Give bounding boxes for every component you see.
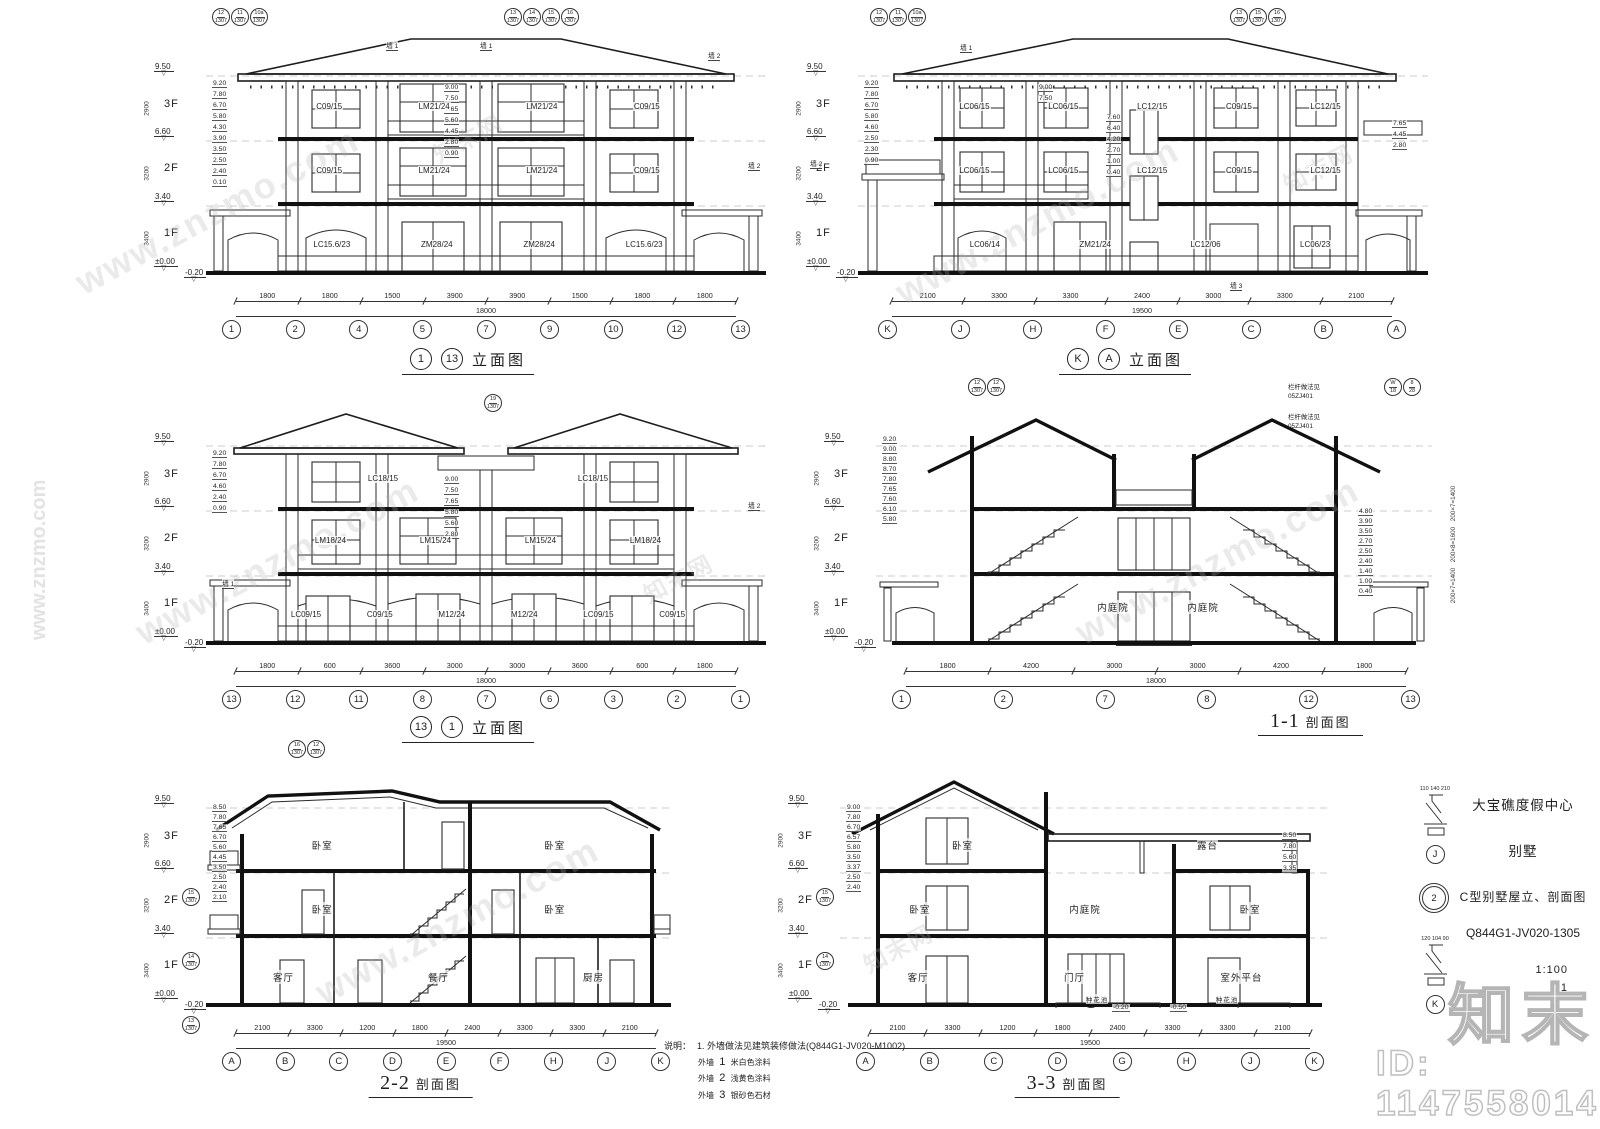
detail-bubble: 111307	[889, 8, 907, 26]
axis-row: ABCDGHJK	[856, 1052, 1324, 1071]
title-axis-start: 1	[410, 348, 432, 370]
axis-bubble: 8	[1197, 690, 1216, 709]
axis-bubble: 7	[477, 690, 496, 709]
wall-finish-tag: 墙 2	[810, 158, 822, 169]
inner-levels: 9.207.806.705.804.303.903.502.502.400.10	[212, 80, 227, 187]
base-levels: -0.20-0.50	[1112, 1004, 1187, 1012]
panel-title: 2-2剖面图	[368, 1072, 473, 1098]
panel-section-3-3: 151307141307 201307 9.50 3F 6.60 2F 3.40…	[782, 742, 1352, 1087]
inner-levels: 8.507.807.656.705.604.453.502.502.402.10	[212, 804, 227, 902]
level-column: 9.50 3F 6.60 2F 3.40 1F ±0.00 -0.20 2900…	[148, 742, 204, 1042]
title-text: 立面图	[472, 717, 526, 738]
room-labels-2f: 卧室卧室	[206, 902, 671, 916]
window-labels-1f: LC15.6/23ZM28/24ZM28/24LC15.6/23	[278, 240, 698, 249]
axis-row: 131211876321	[222, 690, 750, 709]
axis-bubble: 1	[731, 690, 750, 709]
axis-bubble: 4	[349, 320, 368, 339]
dimension-row: 21003300120018002400330033002100	[870, 1023, 1310, 1034]
detail-bubble: 151307	[542, 8, 560, 26]
wall-finish-tag: 墙 1	[960, 42, 972, 53]
room-labels-2f: 卧室内庭院卧室	[840, 902, 1330, 916]
sheet-number-bubble: 2	[1422, 886, 1446, 910]
detail-bubble: W18	[1384, 378, 1402, 396]
detail-bubble: 131307	[504, 8, 522, 26]
title-axis-end: A	[1098, 348, 1120, 370]
level-column: 9.50 3F 6.60 2F 3.40 1F ±0.00 -0.20 2900…	[148, 10, 204, 310]
detail-callouts-right: 131307141307151307161307	[504, 8, 579, 26]
axis-bubble: F	[490, 1052, 509, 1071]
axis-bubble: K	[878, 320, 897, 339]
dimension-row: 180060036003000300036006001800	[236, 661, 736, 672]
inner-levels: 9.209.008.808.707.807.657.606.105.80	[882, 436, 897, 524]
detail-callout: 121307121307	[968, 378, 1005, 396]
room-labels-1f: 客厅餐厅厨房	[206, 970, 671, 984]
dimension-row: 21003300120018002400330033002100	[236, 1023, 656, 1034]
panel-section-1-1: 121307121307 W18828 栏杆做法见05ZJ401 栏杆做法见05…	[818, 380, 1454, 740]
dimension-row: 180042003000300042001800	[906, 661, 1406, 672]
building-elevation-drawing	[206, 396, 766, 646]
axis-bubble: J	[597, 1052, 616, 1071]
axis-bubble: 13	[731, 320, 750, 339]
axis-bubble: 12	[667, 320, 686, 339]
title-axis-end: 13	[441, 348, 463, 370]
panel-title: 1-1剖面图	[1258, 710, 1363, 736]
project-name: 大宝礁度假中心	[1448, 794, 1598, 814]
window-labels-1f: LC09/15C09/15M12/24M12/24LC09/15C09/15	[268, 610, 708, 619]
dimension-row: 2100330033002400300033002100	[892, 291, 1392, 302]
axis-bubble: F	[1096, 320, 1115, 339]
axis-bubble: 10	[604, 320, 623, 339]
detail-bubble: 161307	[1268, 8, 1286, 26]
window-labels-3f: C09/15LM21/24LM21/24C09/15	[278, 102, 698, 111]
axis-bubble: H	[1023, 320, 1042, 339]
detail-bubble: 121307	[212, 8, 230, 26]
notes-block: 说明：1. 外墙做法见建筑装修做法(Q844G1-JV020-M1002). 外…	[664, 1040, 908, 1103]
axis-bubble: E	[1169, 320, 1188, 339]
axis-bubble: 2	[667, 690, 686, 709]
axis-bubble: B	[1314, 320, 1333, 339]
detail-callouts-wh: W18828	[1384, 378, 1421, 396]
title-text: 立面图	[1129, 349, 1183, 370]
detail-axis-bubble: K	[1426, 995, 1445, 1014]
axis-bubble: 2	[994, 690, 1013, 709]
title-axis-start: 13	[410, 716, 432, 738]
building-name: 别墅	[1448, 840, 1598, 860]
detail-callouts-right: 131307151307161307	[1230, 8, 1286, 26]
railing-reference: 栏杆做法见05ZJ401	[1288, 414, 1320, 431]
inner-levels: 7.654.452.80	[1392, 120, 1407, 150]
axis-bubble: 8	[413, 690, 432, 709]
axis-bubble: D	[383, 1052, 402, 1071]
axis-bubble: 7	[1096, 690, 1115, 709]
detail-callouts-left: 12130711130710a1307	[870, 8, 926, 26]
axis-bubble: 1	[222, 320, 241, 339]
room-labels-1f: 客厅门厅室外平台	[840, 970, 1330, 984]
panel-elevation-1-13: 12130711130710a1307 13130714130715130716…	[148, 10, 788, 382]
axis-bubble: 3	[604, 690, 623, 709]
inner-levels: 9.007.507.655.604.452.800.90	[444, 84, 459, 158]
detail-callout-topleft: 161307121307	[288, 740, 325, 758]
inner-levels: 9.007.507.655.805.602.80	[444, 476, 459, 539]
window-labels-2f: LM18/24LM15/24LM15/24LM18/24	[278, 536, 698, 545]
panel-section-2-2: 161307121307 151307141307131307 9.50 3F …	[148, 742, 693, 1087]
window-labels-2f: LC06/15LC06/15LC12/15C09/15LC12/15	[930, 166, 1370, 175]
level-column: 9.50 3F 6.60 2F 3.40 1F ±0.00 -0.20 2900…	[148, 380, 204, 680]
image-id: ID: 1147558014	[1376, 1044, 1600, 1124]
stair-riser-dims: 200×7=1400200×8=1600200×7=1400	[1436, 500, 1471, 589]
total-dimension: 19500	[870, 1038, 1310, 1049]
detail-bubble: 131307	[1230, 8, 1248, 26]
total-dimension: 18000	[236, 306, 736, 317]
axis-bubble: 9	[540, 320, 559, 339]
dimension-row: 18001800150039003900150018001800	[236, 291, 736, 302]
axis-bubble: B	[276, 1052, 295, 1071]
wall-finish-tag: 墙 2	[748, 160, 760, 171]
axis-bubble: K	[1305, 1052, 1324, 1071]
watermark-vertical: www.znzmo.com	[28, 480, 51, 640]
detail-bubble: 10a1307	[250, 8, 268, 26]
inner-levels: 9.207.806.704.602.400.90	[212, 450, 227, 513]
detail-bubble: 121307	[870, 8, 888, 26]
axis-bubble: A	[222, 1052, 241, 1071]
drawing-title: C型别墅屋立、剖面图	[1448, 888, 1598, 905]
axis-row: 12781213	[892, 690, 1420, 709]
detail-axis-bubble: J	[1426, 845, 1445, 864]
axis-bubble: 12	[286, 690, 305, 709]
panel-title: 1 13 立面图	[402, 348, 534, 375]
axis-row: ABCDEFHJK	[222, 1052, 670, 1071]
wall-finish-tag: 墙 1	[222, 578, 234, 589]
detail-bubble: 121307	[987, 378, 1005, 396]
notes-heading: 说明：	[664, 1041, 691, 1051]
window-labels-2f: C09/15LM21/24LM21/24C09/15	[278, 166, 698, 175]
room-labels-3f: 卧室露台	[840, 838, 1330, 852]
building-elevation-drawing	[858, 26, 1428, 276]
window-labels-1f: LC06/14ZM21/24LC12/06LC06/23	[930, 240, 1370, 249]
axis-bubble: H	[1177, 1052, 1196, 1071]
detail-bubble: 121307	[968, 378, 986, 396]
axis-bubble: E	[437, 1052, 456, 1071]
notes-items: 外墙 1 米白色涂料外墙 2 浅黄色涂料外墙 3 银砂色石材	[664, 1054, 908, 1104]
planter-labels: 种花池种花池	[1032, 994, 1292, 1004]
panel-title: 13 1 立面图	[402, 716, 534, 743]
axis-bubble: C	[1242, 320, 1261, 339]
axis-bubble: 11	[349, 690, 368, 709]
building-elevation-drawing	[206, 26, 766, 276]
axis-bubble: G	[1113, 1052, 1132, 1071]
detail-bubble: 161307	[288, 740, 306, 758]
title-text: 立面图	[472, 349, 526, 370]
wall-finish-tag: 墙 2	[708, 50, 720, 61]
detail-bubble: 161307	[561, 8, 579, 26]
axis-row: KJHFECBA	[878, 320, 1406, 339]
level-column: 9.50 3F 6.60 2F 3.40 1F ±0.00 -0.20 2900…	[782, 742, 838, 1042]
axis-bubble: 2	[286, 320, 305, 339]
wall-finish-tag: 墙 2	[748, 500, 760, 511]
total-dimension: 18000	[236, 676, 736, 687]
detail-bubble: 10a1307	[908, 8, 926, 26]
wall-finish-tag: 墙 1	[386, 40, 398, 51]
detail-bubble: 121307	[307, 740, 325, 758]
axis-row: 124579101213	[222, 320, 750, 339]
window-labels-3f: LC18/15LC18/15	[278, 474, 698, 483]
axis-bubble: 6	[540, 690, 559, 709]
notes-line: 1. 外墙做法见建筑装修做法(Q844G1-JV020-M1002).	[697, 1041, 908, 1051]
title-axis-start: K	[1067, 348, 1089, 370]
panel-title: 3-3剖面图	[1015, 1072, 1120, 1098]
axis-bubble: J	[1241, 1052, 1260, 1071]
railing-reference: 栏杆做法见05ZJ401	[1288, 384, 1320, 401]
room-labels-3f: 卧室卧室	[206, 838, 671, 852]
drawing-number: Q844G1-JV020-1305	[1448, 926, 1598, 940]
room-labels: 内庭院内庭院	[1068, 600, 1248, 614]
axis-bubble: 13	[1401, 690, 1420, 709]
axis-bubble: C	[329, 1052, 348, 1071]
inner-levels: 4.803.903.502.702.502.401.401.000.40	[1358, 508, 1373, 596]
detail-bubble: 111307	[231, 8, 249, 26]
axis-bubble: J	[951, 320, 970, 339]
detail-bubble: 151307	[1249, 8, 1267, 26]
total-dimension: 19500	[892, 306, 1392, 317]
cad-sheet: www.znzmo.com 知末网 www.znzmo.com 知末网 www.…	[0, 0, 1600, 1129]
level-column: 9.50 3F 6.60 2F 3.40 1F ±0.00 -0.20 2900…	[818, 380, 874, 680]
axis-bubble: D	[1048, 1052, 1067, 1071]
axis-bubble: H	[544, 1052, 563, 1071]
axis-bubble: 5	[413, 320, 432, 339]
inner-levels: 9.007.50	[1038, 84, 1053, 103]
axis-bubble: 13	[222, 690, 241, 709]
level-column: 9.50 3F 6.60 2F 3.40 1F ±0.00 -0.20 2900…	[800, 10, 856, 310]
window-labels-3f: LC06/15LC06/15LC12/15C09/15LC12/15	[930, 102, 1370, 111]
total-dimension: 18000	[906, 676, 1406, 687]
inner-levels: 9.207.806.705.804.602.502.300.90	[864, 80, 879, 165]
panel-elevation-K-A: 12130711130710a1307 131307151307161307 墙…	[800, 10, 1450, 382]
wall-finish-tag: 墙 1	[480, 40, 492, 51]
wall-finish-tag: 墙 3	[1230, 280, 1242, 291]
panel-title: K A 立面图	[1059, 348, 1191, 375]
axis-bubble: 1	[892, 690, 911, 709]
axis-bubble: C	[984, 1052, 1003, 1071]
title-axis-end: 1	[441, 716, 463, 738]
total-dimension: 19500	[236, 1038, 656, 1049]
detail-callouts-left: 12130711130710a1307	[212, 8, 268, 26]
panel-elevation-13-1: 191307 墙 1 墙 2 9.50 3F 6.60 2F 3.40 1F ±…	[148, 380, 788, 740]
axis-bubble: 12	[1299, 690, 1318, 709]
axis-bubble: A	[1387, 320, 1406, 339]
axis-bubble: 7	[477, 320, 496, 339]
detail-bubble: 828	[1403, 378, 1421, 396]
detail-bubble: 141307	[523, 8, 541, 26]
axis-bubble: B	[920, 1052, 939, 1071]
